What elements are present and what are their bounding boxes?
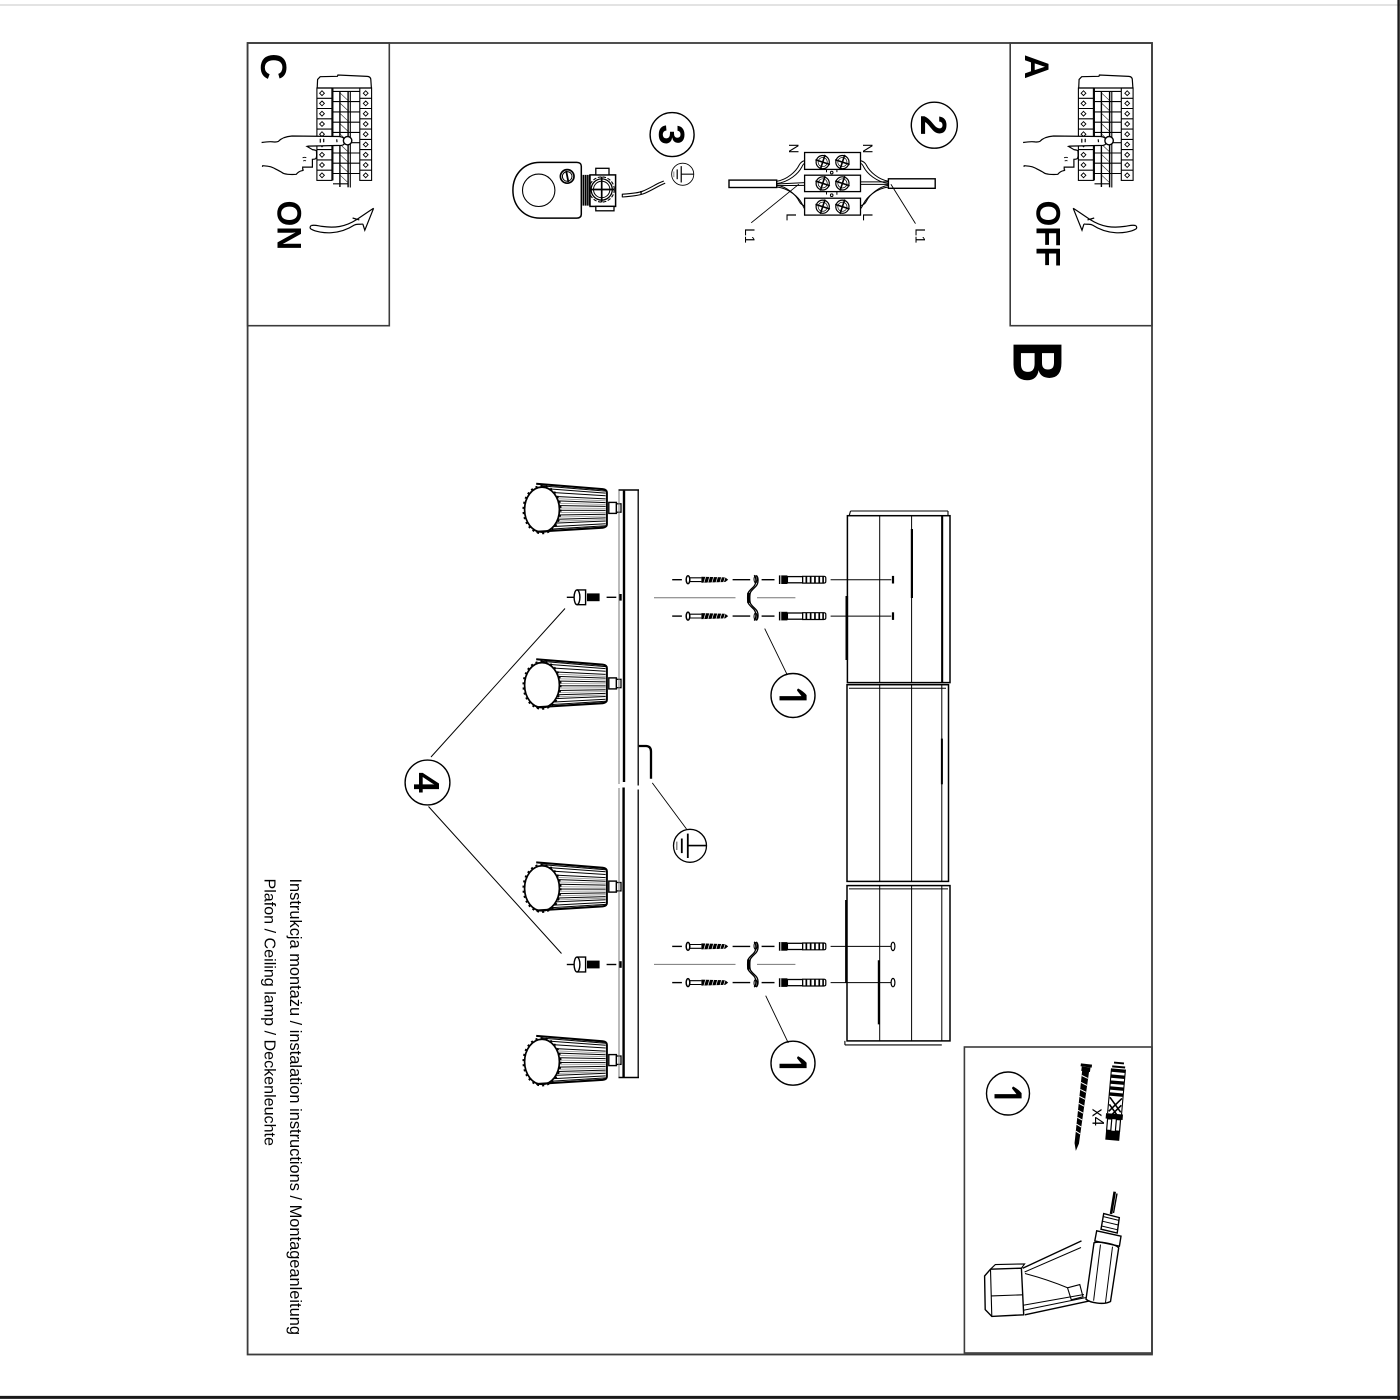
svg-text:OFF: OFF bbox=[1028, 201, 1067, 267]
svg-text:N: N bbox=[786, 144, 801, 154]
svg-text:N: N bbox=[860, 144, 875, 154]
svg-text:L: L bbox=[860, 213, 875, 221]
svg-text:x4: x4 bbox=[1089, 1109, 1107, 1126]
svg-text:A: A bbox=[1017, 55, 1055, 80]
svg-text:4: 4 bbox=[406, 772, 447, 793]
svg-text:L: L bbox=[783, 213, 798, 221]
svg-text:Instrukcja montażu / instalati: Instrukcja montażu / instalation instruc… bbox=[286, 879, 304, 1335]
svg-text:3: 3 bbox=[651, 124, 692, 144]
svg-text:L1: L1 bbox=[742, 228, 757, 243]
svg-text:L1: L1 bbox=[912, 228, 927, 243]
svg-text:ON: ON bbox=[269, 201, 308, 251]
svg-text:2: 2 bbox=[913, 115, 954, 135]
svg-text:Plafon / Ceiling lamp / Decken: Plafon / Ceiling lamp / Deckenleuchte bbox=[261, 879, 279, 1147]
svg-text:C: C bbox=[253, 54, 294, 80]
svg-text:B: B bbox=[998, 341, 1076, 383]
